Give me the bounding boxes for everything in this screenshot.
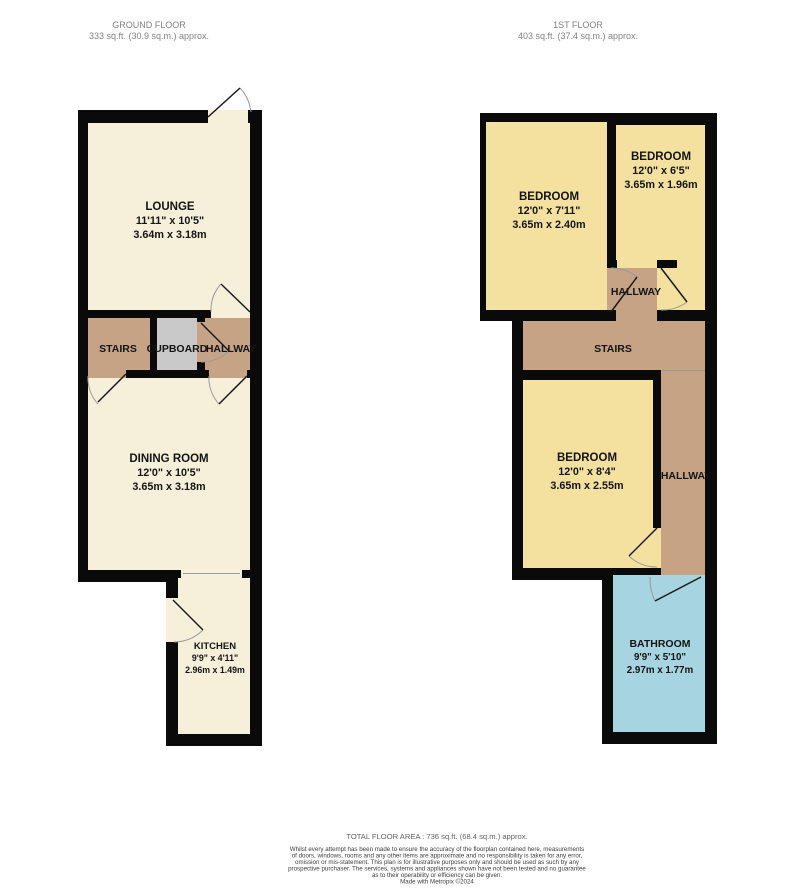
kitchen-door-opening bbox=[166, 598, 178, 642]
ground-stairs-label: STAIRS bbox=[99, 343, 137, 355]
bedroom-front-ext2 bbox=[677, 260, 705, 268]
bedroom-back-label: BEDROOM bbox=[557, 452, 617, 464]
kitchen-label: KITCHEN bbox=[194, 641, 236, 652]
bedroom-front-room bbox=[616, 125, 705, 260]
lounge-label: LOUNGE bbox=[145, 201, 195, 213]
lounge-door-opening bbox=[211, 310, 250, 318]
bedroom-middle-dim-metric: 3.65m x 2.40m bbox=[512, 219, 585, 231]
lounge-dim-imperial: 11'11" x 10'5" bbox=[136, 215, 204, 227]
lounge-dim-metric: 3.64m x 3.18m bbox=[133, 229, 206, 241]
kitchen-wall-stub-right bbox=[242, 570, 250, 578]
side-hallway-label: HALLWAY bbox=[661, 470, 711, 482]
bedroom-front-door-opening bbox=[617, 260, 657, 268]
bedroom-front-ext bbox=[657, 268, 705, 310]
ground-floor-plan: LOUNGE 11'11" x 10'5" 3.64m x 3.18m STAI… bbox=[78, 88, 262, 746]
dining-door-opening bbox=[209, 370, 247, 378]
bedroom-front-dim-metric: 3.65m x 1.96m bbox=[624, 179, 697, 191]
kitchen-room bbox=[178, 570, 250, 734]
cupboard-label: CUPBOARD bbox=[147, 343, 208, 355]
bedroom-front-dim-imperial: 12'0" x 6'5" bbox=[632, 165, 689, 177]
bedroom-back-door-opening bbox=[653, 528, 661, 568]
bedroom-middle-dim-imperial: 12'0" x 7'11" bbox=[518, 205, 581, 217]
first-floor-area: 403 sq.ft. (37.4 sq.m.) approx. bbox=[518, 31, 638, 41]
landing-hallway-label: HALLWAY bbox=[611, 286, 661, 298]
bedroom-back-dim-metric: 3.65m x 2.55m bbox=[550, 480, 623, 492]
kitchen-wall-stub-left bbox=[178, 570, 181, 578]
floorplan-canvas: LOUNGE 11'11" x 10'5" 3.64m x 3.18m STAI… bbox=[0, 0, 800, 888]
floor-headers: GROUND FLOOR 333 sq.ft. (30.9 sq.m.) app… bbox=[89, 20, 638, 41]
first-stairs-label: STAIRS bbox=[594, 343, 632, 355]
ground-floor-area: 333 sq.ft. (30.9 sq.m.) approx. bbox=[89, 31, 209, 41]
bathroom-label: BATHROOM bbox=[629, 638, 690, 650]
first-floor-title: 1ST FLOOR bbox=[553, 20, 603, 30]
cupboard-door-opening bbox=[197, 322, 205, 362]
dining-label: DINING ROOM bbox=[129, 453, 208, 465]
bathroom-dim-metric: 2.97m x 1.77m bbox=[627, 665, 694, 676]
first-floor-plan: BEDROOM 12'0" x 6'5" 3.65m x 1.96m BEDRO… bbox=[480, 113, 717, 744]
dining-dim-metric: 3.65m x 3.18m bbox=[132, 481, 205, 493]
stairs-door-opening bbox=[88, 370, 126, 378]
ground-hallway-label: HALLWAY bbox=[206, 343, 256, 355]
bedroom-front-label: BEDROOM bbox=[631, 151, 691, 163]
total-floor-area: TOTAL FLOOR AREA : 736 sq.ft. (68.4 sq.m… bbox=[346, 832, 527, 841]
bedroom-back-dim-imperial: 12'0" x 8'4" bbox=[558, 466, 615, 478]
floorplan-page: LOUNGE 11'11" x 10'5" 3.64m x 3.18m STAI… bbox=[0, 0, 800, 888]
kitchen-dim-imperial: 9'9" x 4'11" bbox=[192, 653, 238, 663]
dining-dim-imperial: 12'0" x 10'5" bbox=[137, 467, 200, 479]
bathroom-dim-imperial: 9'9" x 5'10" bbox=[634, 652, 686, 663]
footer: TOTAL FLOOR AREA : 736 sq.ft. (68.4 sq.m… bbox=[288, 832, 586, 886]
ground-floor-title: GROUND FLOOR bbox=[112, 20, 186, 30]
bedroom-middle-label: BEDROOM bbox=[519, 191, 579, 203]
kitchen-dim-metric: 2.96m x 1.49m bbox=[185, 665, 245, 675]
metropix-credit: Made with Metropix ©2024 bbox=[400, 879, 474, 886]
